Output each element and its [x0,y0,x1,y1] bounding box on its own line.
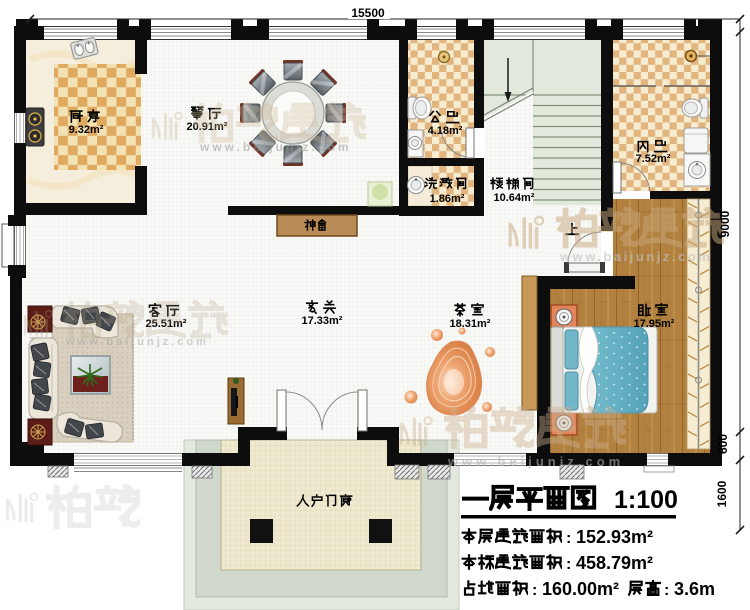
svg-text:18.31m²: 18.31m² [450,318,491,330]
svg-text::: : [566,530,571,547]
svg-text:www.beijunjz.com: www.beijunjz.com [447,454,624,469]
svg-text:17.95m²: 17.95m² [634,318,675,330]
svg-text:www.baijunjz.com: www.baijunjz.com [199,140,352,154]
svg-text::: : [566,556,571,573]
svg-text:10.64m²: 10.64m² [494,192,535,204]
svg-text:www.baijunjz.com: www.baijunjz.com [559,249,712,264]
svg-text:9.32m²: 9.32m² [69,124,104,136]
svg-text:3.6m: 3.6m [674,579,715,599]
svg-text:458.79m²: 458.79m² [576,553,653,573]
svg-text:4.18m²: 4.18m² [428,125,463,137]
svg-text:1.86m²: 1.86m² [430,193,465,205]
svg-text:17.33m²: 17.33m² [302,315,343,327]
svg-text:7.52m²: 7.52m² [636,153,671,165]
svg-text:600: 600 [716,434,730,454]
svg-text::: : [532,582,537,599]
svg-text:www.baijunjz.com: www.baijunjz.com [65,336,209,348]
svg-text::: : [664,582,669,599]
svg-text:160.00m²: 160.00m² [542,579,619,599]
svg-text:1600: 1600 [715,480,729,507]
svg-text:9000: 9000 [718,210,732,237]
svg-text:152.93m²: 152.93m² [576,527,653,547]
svg-text:15500: 15500 [351,6,385,20]
svg-text:1:100: 1:100 [614,486,678,514]
